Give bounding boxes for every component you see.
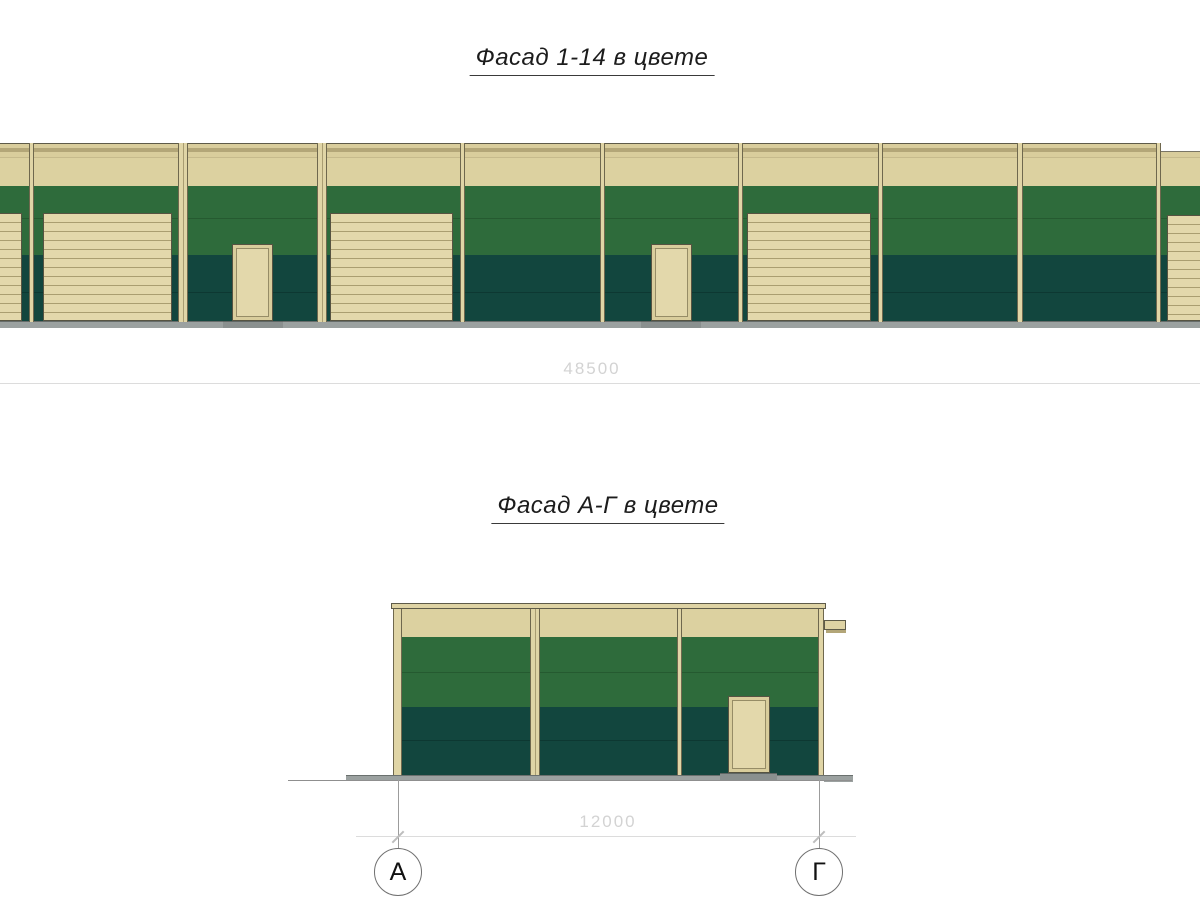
facade-a-g-title: Фасад А-Г в цвете [491, 492, 724, 524]
column-pilaster [878, 143, 883, 322]
axis-bubble-g: Г [795, 848, 843, 896]
green-panel-upper [393, 637, 824, 672]
dimension-line-12000 [356, 836, 856, 837]
dimension-value-48500: 48500 [563, 359, 620, 379]
parapet-step [1161, 139, 1200, 152]
door-threshold [223, 321, 283, 328]
entry-door [232, 244, 273, 321]
garage-door [43, 213, 172, 321]
plinth-strip [0, 321, 1200, 328]
door-panel [655, 248, 688, 317]
corner-pilaster [393, 608, 402, 775]
column-pilaster [677, 608, 682, 775]
axis-bubble-a: А [374, 848, 422, 896]
door-threshold [720, 773, 777, 780]
parapet-band [393, 609, 824, 637]
column-pilaster [178, 143, 188, 322]
entry-door [651, 244, 692, 321]
column-pilaster [29, 143, 34, 322]
door-panel [732, 700, 766, 769]
ground-line [288, 780, 852, 781]
door-threshold [641, 321, 701, 328]
garage-door [0, 213, 22, 321]
door-panel [236, 248, 269, 317]
column-pilaster [317, 143, 327, 322]
drawing-canvas: Фасад 1-14 в цвете Фасад А-Г в цвете 485… [0, 0, 1200, 900]
parapet-coping [391, 603, 826, 609]
column-pilaster [738, 143, 743, 322]
facade-1-14-title: Фасад 1-14 в цвете [470, 44, 715, 76]
corner-pilaster [818, 608, 824, 775]
entry-door [728, 696, 770, 773]
column-pilaster [1156, 143, 1161, 322]
rain-scupper-shadow [826, 630, 846, 633]
column-pilaster [530, 608, 540, 775]
dimension-value-12000: 12000 [579, 812, 636, 832]
column-pilaster [460, 143, 465, 322]
garage-door [747, 213, 871, 321]
garage-door [1167, 215, 1200, 321]
column-pilaster [1017, 143, 1023, 322]
column-pilaster [600, 143, 605, 322]
dimension-line-48500 [0, 383, 1200, 384]
garage-door [330, 213, 453, 321]
rain-scupper [824, 620, 846, 630]
